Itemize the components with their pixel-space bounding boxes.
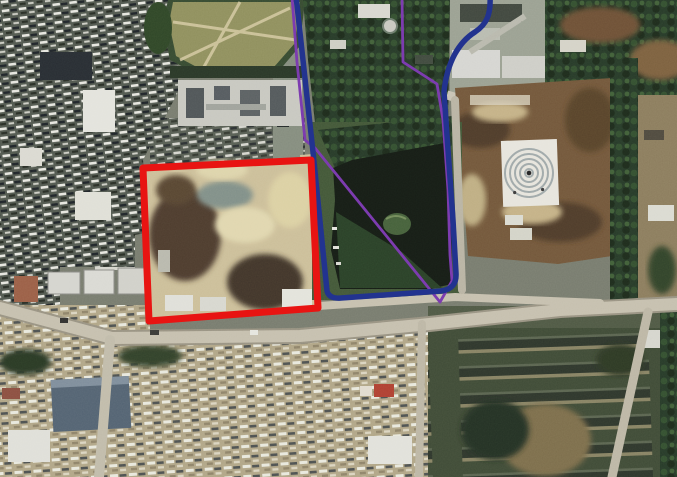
satellite-figure <box>0 0 677 477</box>
photo-base <box>0 0 677 477</box>
satellite-image <box>0 0 677 477</box>
